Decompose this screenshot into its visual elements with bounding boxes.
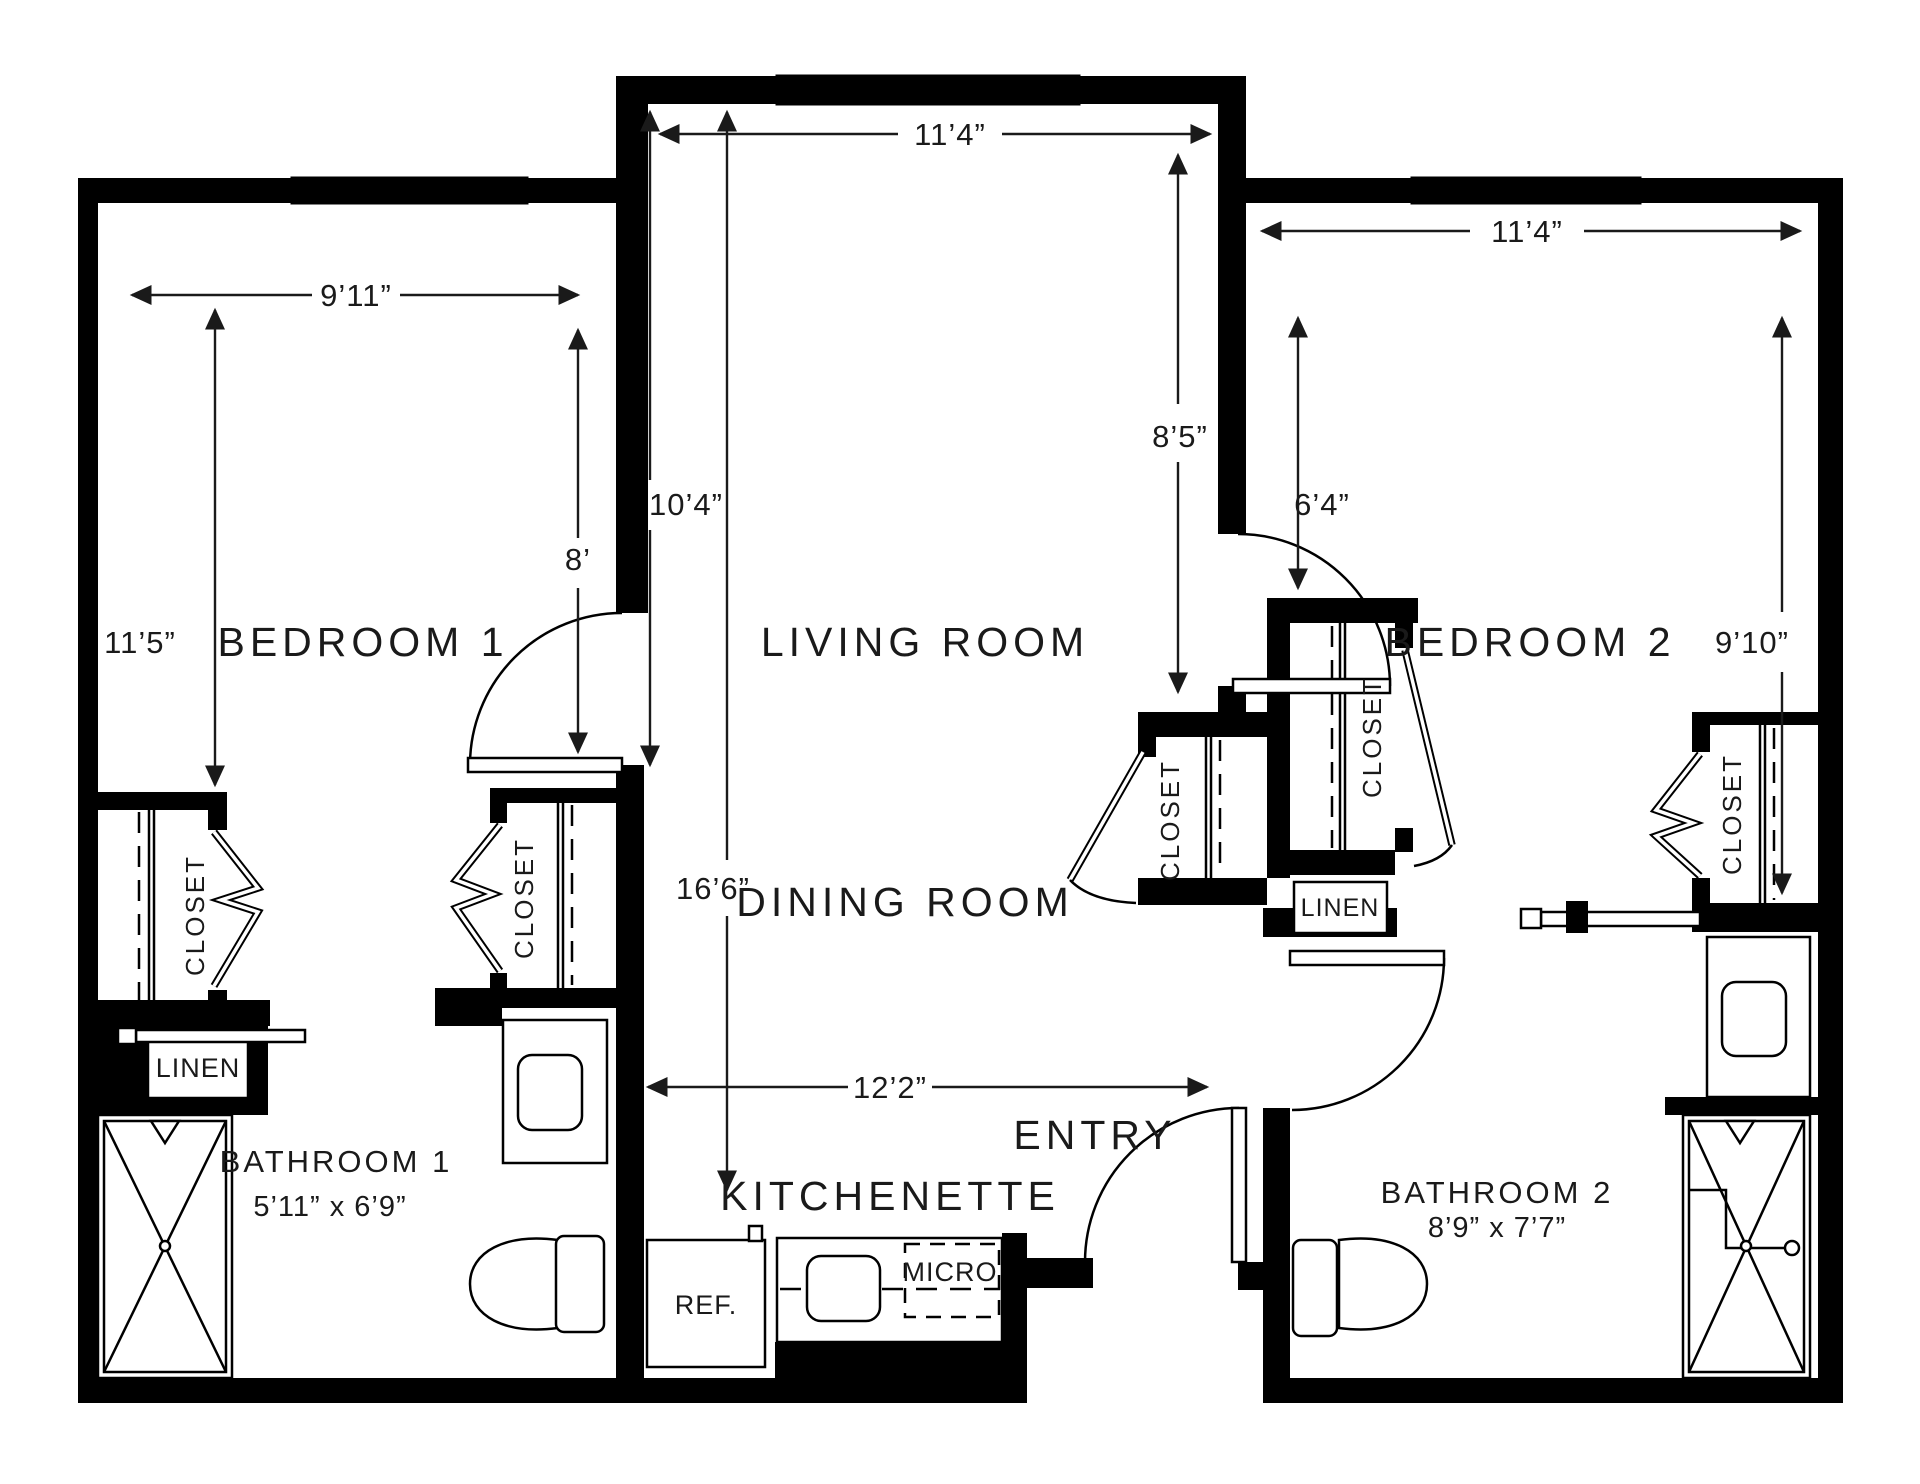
wall-bedroom2-closet-bottom xyxy=(1692,903,1843,932)
closet-label: CLOSET xyxy=(1717,753,1747,875)
wall-closet2-bottom xyxy=(435,988,620,1008)
dimension-label-bedroom2-left: 6’4” xyxy=(1294,487,1350,522)
wall-right-outer xyxy=(1818,178,1843,1403)
door-leaf-entry xyxy=(1232,1108,1246,1262)
floor-plan-page: 9’11” 11’5” 8’ 10’4” 16’6” 11’4” 8’5” 6’… xyxy=(0,0,1920,1484)
room-label-dining-room: DINING ROOM xyxy=(736,879,1073,925)
linen-label: LINEN xyxy=(156,1053,241,1083)
door-arc-bathroom-2 xyxy=(1292,958,1444,1110)
wall-dining-closet-divider xyxy=(1267,623,1290,878)
wall-counter-base xyxy=(775,1342,1027,1403)
wall-entry-step xyxy=(1002,1233,1027,1403)
floor-plan-canvas: 9’11” 11’5” 8’ 10’4” 16’6” 11’4” 8’5” 6’… xyxy=(0,0,1920,1484)
sink-bathroom-1 xyxy=(518,1055,582,1130)
dimension-label-living-right: 8’5” xyxy=(1152,419,1208,454)
sliding-door-bathroom1 xyxy=(136,1030,305,1042)
wall-living-left-lower xyxy=(616,765,644,1378)
swing-door-dining-closet xyxy=(1070,752,1143,880)
wall-vestibule-stub-top xyxy=(1566,901,1588,933)
swing-door-dining-closet-2 xyxy=(1405,650,1452,845)
dimension-label-bedroom1-left: 11’5” xyxy=(104,625,176,660)
kitchen-sink xyxy=(807,1256,880,1321)
room-label-bathroom-2: BATHROOM 2 xyxy=(1381,1175,1614,1210)
room-label-bedroom-2: BEDROOM 2 xyxy=(1384,619,1675,665)
wall-entry-south xyxy=(1027,1258,1093,1288)
room-label-bedroom-1: BEDROOM 1 xyxy=(217,619,508,665)
door-arc-dining-closet-2 xyxy=(1414,845,1452,866)
wall-bottom-right xyxy=(1263,1378,1843,1403)
dimension-label-bedroom2-right: 9’10” xyxy=(1715,625,1789,660)
dimension-label-bedroom1-width: 9’11” xyxy=(320,278,392,313)
shower-stall-bathroom-2 xyxy=(1683,1115,1810,1378)
wall-bedroom2-closet-jamb xyxy=(1692,878,1710,903)
wall-living-left-upper xyxy=(616,76,648,613)
shower-stall-bathroom-1 xyxy=(98,1115,232,1378)
room-label-living-room: LIVING ROOM xyxy=(761,619,1089,665)
wall-living-right-upper xyxy=(1218,104,1246,534)
sliding-door-bedroom2 xyxy=(1541,912,1700,926)
closet-label: CLOSET xyxy=(1155,759,1185,881)
shower-plumbing xyxy=(1690,1190,1785,1248)
room-dims-bathroom-2: 8’9” x 7’7” xyxy=(1428,1212,1566,1244)
toilet-bathroom-2 xyxy=(1293,1239,1427,1336)
closet-label: CLOSET xyxy=(509,837,539,959)
wall-left-outer xyxy=(78,178,98,1403)
shower-drain xyxy=(160,1241,170,1251)
wall-bathroom2-left xyxy=(1263,1108,1290,1403)
sliding-door-handle xyxy=(118,1028,136,1044)
wall-closet2-jamb xyxy=(490,973,507,993)
shower-head-marker xyxy=(1726,1121,1754,1143)
kitchen-counter xyxy=(777,1238,1002,1342)
linen-label: LINEN xyxy=(1301,894,1380,922)
wall-entry-jamb xyxy=(1238,1262,1263,1290)
door-leaf-bathroom-2 xyxy=(1290,951,1444,965)
wall-dining-closet2-bottom xyxy=(1290,850,1395,875)
dimension-label-bedroom2-width: 11’4” xyxy=(1491,214,1563,249)
wall-closet2-top xyxy=(490,788,620,803)
toilet-bathroom-1 xyxy=(470,1236,604,1332)
room-labels: BEDROOM 1 LIVING ROOM BEDROOM 2 DINING R… xyxy=(156,619,1747,1320)
room-label-kitchenette: KITCHENETTE xyxy=(720,1173,1060,1219)
door-arc-dining-closet xyxy=(1070,880,1136,903)
closet-label: CLOSET xyxy=(1357,676,1387,798)
refrigerator-handle xyxy=(749,1226,762,1241)
door-leaf-bedroom-1 xyxy=(468,758,622,772)
vanity-bathroom-1 xyxy=(503,1020,607,1163)
appliance-label-microwave: MICRO xyxy=(903,1257,998,1287)
wall-bedroom1-closet-jamb xyxy=(208,810,227,830)
shower-head-marker xyxy=(151,1121,179,1143)
dimension-label-hall-width: 12’2” xyxy=(853,1070,927,1105)
room-dims-bathroom-1: 5’11” x 6’9” xyxy=(253,1191,406,1223)
room-label-bathroom-1: BATHROOM 1 xyxy=(220,1144,453,1179)
closet-interiors xyxy=(139,623,1774,1012)
room-label-entry: ENTRY xyxy=(1013,1112,1176,1158)
sink-bathroom-2 xyxy=(1722,982,1786,1056)
closet-label: CLOSET xyxy=(180,854,210,976)
wall-dining-closet2-jamb xyxy=(1395,828,1413,852)
vanity-bathroom-2 xyxy=(1707,937,1810,1097)
wall-dining-closet-top xyxy=(1138,712,1267,737)
wall-bathroom1-entry xyxy=(78,1000,270,1026)
wall-bedroom2-closet-top xyxy=(1692,712,1843,725)
sliding-door-handle xyxy=(1521,909,1541,928)
dimension-label-bedroom1-right: 8’ xyxy=(565,542,591,577)
shower-control xyxy=(1785,1241,1799,1255)
wall-bedroom2-closet-jamb xyxy=(1692,725,1710,752)
appliance-label-fridge: REF. xyxy=(675,1290,738,1320)
wall-bedroom1-closet-top xyxy=(98,792,227,810)
dimension-label-living-left-upper: 10’4” xyxy=(649,487,723,522)
wall-closet2-jamb xyxy=(490,803,507,823)
shower-drain xyxy=(1741,1241,1751,1251)
dimension-label-living-width: 11’4” xyxy=(914,117,986,152)
wall-dining-closet-bottom xyxy=(1138,878,1267,905)
wall-bath2-vanity-divider xyxy=(1665,1097,1818,1115)
